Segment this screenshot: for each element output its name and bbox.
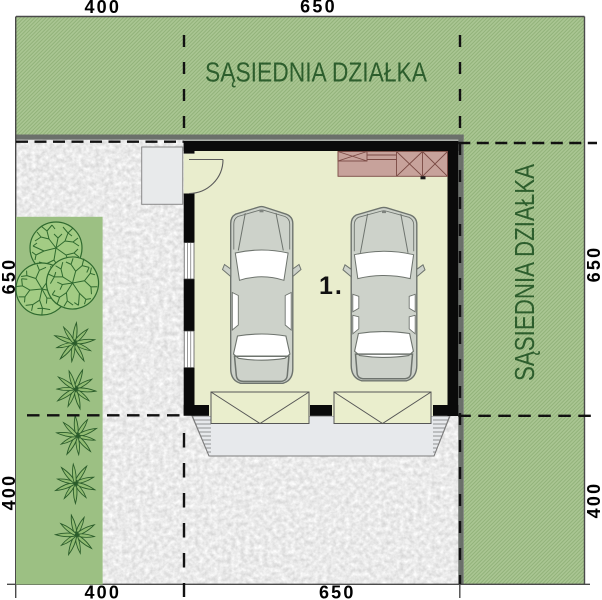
svg-text:400: 400	[584, 482, 602, 519]
svg-text:1.: 1.	[319, 272, 344, 300]
svg-text:650: 650	[300, 0, 337, 17]
svg-text:SĄSIEDNIA DZIAŁKA: SĄSIEDNIA DZIAŁKA	[205, 56, 427, 87]
svg-text:400: 400	[0, 474, 19, 511]
svg-text:SĄSIEDNIA DZIAŁKA: SĄSIEDNIA DZIAŁKA	[509, 164, 540, 381]
svg-text:650: 650	[0, 258, 19, 295]
svg-text:650: 650	[584, 246, 602, 283]
svg-text:650: 650	[319, 582, 356, 600]
svg-text:400: 400	[84, 583, 121, 600]
svg-text:400: 400	[84, 0, 121, 17]
